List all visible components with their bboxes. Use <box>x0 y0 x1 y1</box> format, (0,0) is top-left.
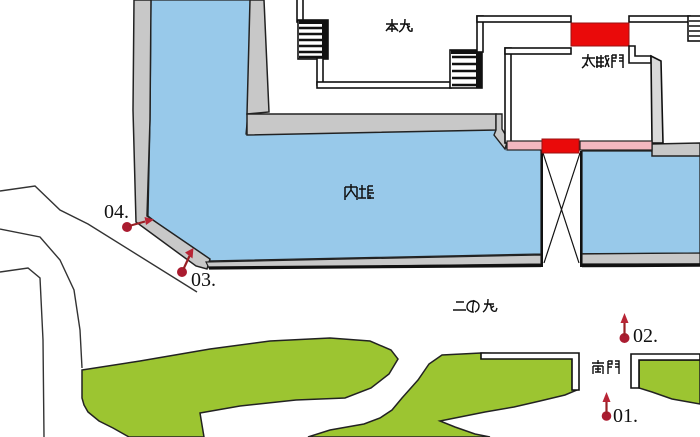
svg-text:01.: 01. <box>613 405 638 427</box>
svg-text:04.: 04. <box>104 201 129 223</box>
svg-text:03.: 03. <box>191 269 216 291</box>
svg-text:02.: 02. <box>633 325 658 347</box>
